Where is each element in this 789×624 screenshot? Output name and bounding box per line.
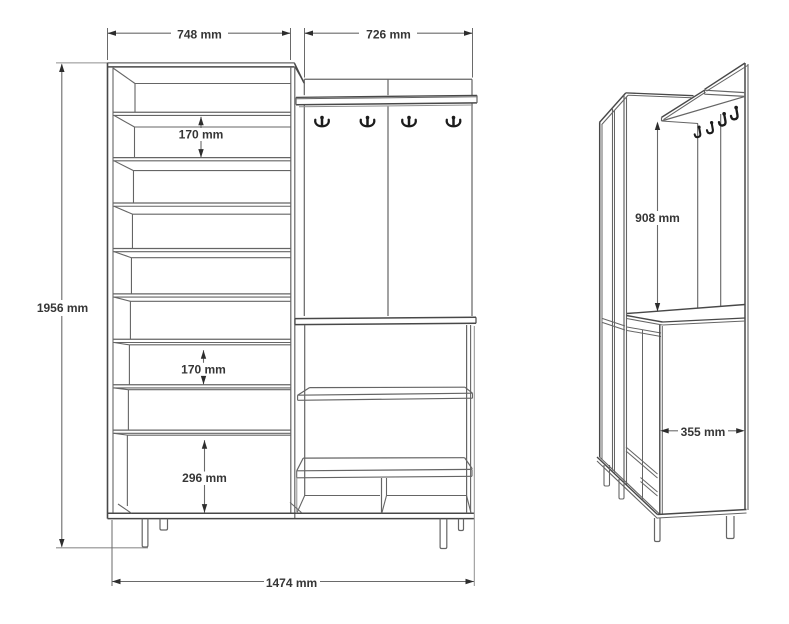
svg-text:908 mm: 908 mm: [635, 211, 680, 225]
svg-text:170 mm: 170 mm: [179, 128, 224, 142]
svg-text:1474 mm: 1474 mm: [266, 576, 317, 590]
svg-text:748 mm: 748 mm: [177, 28, 222, 42]
svg-text:1956 mm: 1956 mm: [37, 301, 88, 315]
svg-text:296 mm: 296 mm: [182, 471, 227, 485]
svg-text:355 mm: 355 mm: [681, 425, 726, 439]
svg-text:170 mm: 170 mm: [181, 362, 226, 376]
svg-text:726 mm: 726 mm: [366, 28, 411, 42]
